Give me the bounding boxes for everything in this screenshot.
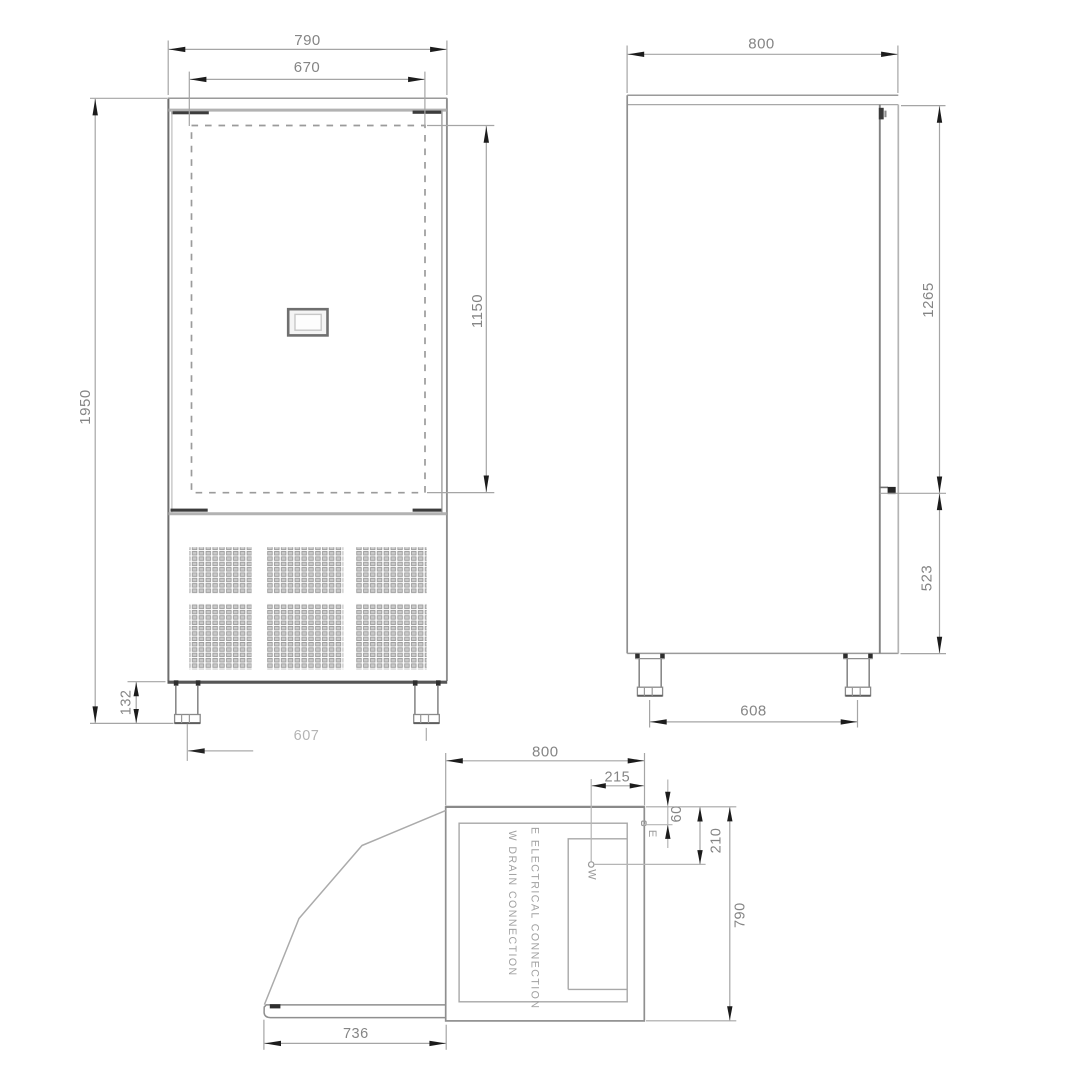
svg-text:W: W [586,869,598,880]
svg-text:215: 215 [605,770,631,786]
svg-text:W DRAIN CONNECTION: W DRAIN CONNECTION [506,831,518,977]
svg-text:1150: 1150 [469,294,486,328]
svg-text:800: 800 [748,36,775,53]
svg-text:1265: 1265 [920,282,937,317]
svg-text:608: 608 [740,703,767,720]
svg-text:210: 210 [708,828,724,854]
svg-text:790: 790 [733,902,749,928]
svg-text:800: 800 [532,743,559,760]
svg-text:790: 790 [294,32,321,49]
svg-text:E ELECTRICAL CONNECTION: E ELECTRICAL CONNECTION [529,827,541,1009]
svg-text:523: 523 [919,565,936,592]
svg-text:1950: 1950 [77,389,94,424]
svg-text:736: 736 [343,1026,369,1042]
svg-text:607: 607 [294,728,320,744]
svg-text:132: 132 [119,690,135,716]
svg-text:60: 60 [669,805,685,822]
svg-text:670: 670 [294,59,321,76]
svg-text:E: E [646,830,658,837]
